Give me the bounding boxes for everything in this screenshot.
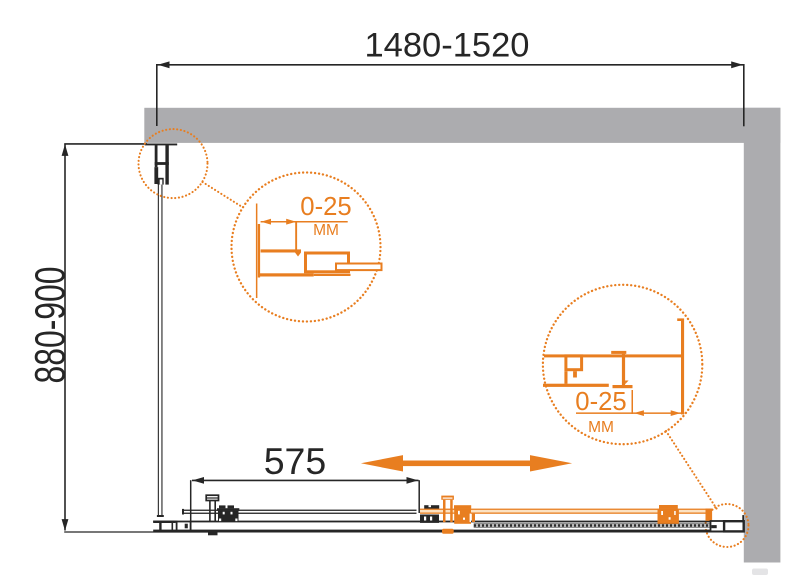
svg-text:0-25: 0-25: [575, 388, 626, 416]
svg-text:ММ: ММ: [588, 419, 614, 436]
svg-text:ММ: ММ: [313, 222, 339, 239]
svg-text:575: 575: [264, 440, 327, 482]
svg-text:0-25: 0-25: [300, 193, 351, 221]
svg-text:1480-1520: 1480-1520: [365, 27, 530, 65]
svg-text:880-900: 880-900: [27, 267, 75, 384]
